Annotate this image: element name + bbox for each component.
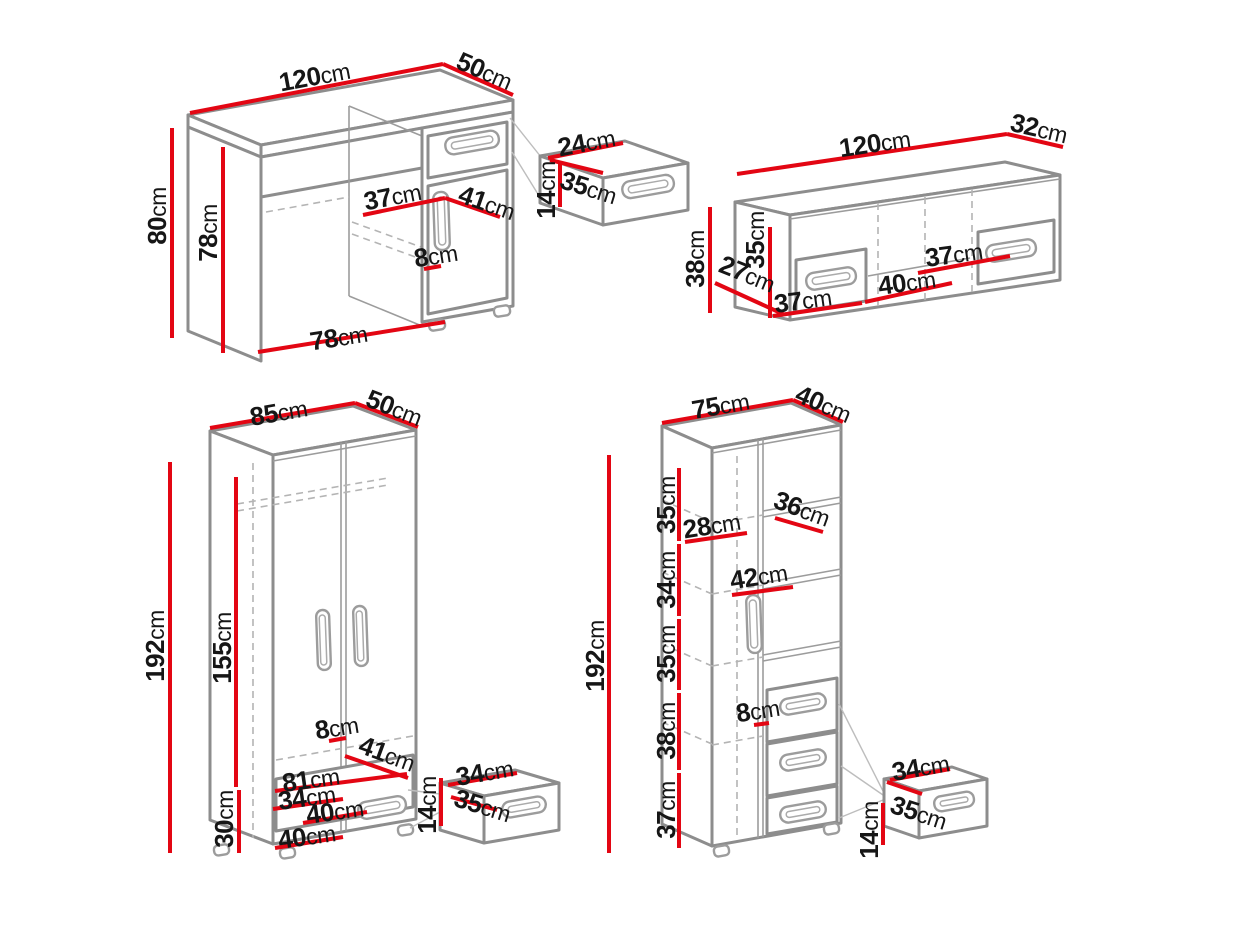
- furniture-dimensions-diagram: 120cm 50cm 80cm 78cm 37cm 41cm 8cm 78cm …: [0, 0, 1234, 925]
- furniture-dimension-sheet: 120cm 50cm 80cm 78cm 37cm 41cm 8cm 78cm …: [0, 0, 1234, 925]
- bookcase-diagram: 75cm 40cm 192cm 35cm 34cm 35cm 38cm 37cm…: [580, 379, 856, 857]
- bookcase-foot: [713, 845, 730, 857]
- dim-label-desk-height: 80cm: [142, 187, 172, 245]
- desk-foot: [493, 305, 510, 317]
- wardrobe-left-handle-icon: [316, 610, 331, 670]
- wall-cabinet-diagram: 120cm 32cm 38cm 35cm 27cm 37cm 40cm 37cm: [680, 107, 1070, 320]
- dim-label-drawer-height: 14cm: [854, 801, 884, 859]
- dim-label-section-3: 35cm: [651, 625, 681, 683]
- desk-diagram: 120cm 50cm 80cm 78cm 37cm 41cm 8cm 78cm: [142, 46, 519, 361]
- leader-line: [510, 118, 541, 157]
- dim-label-desk-opening: 78cm: [308, 318, 370, 357]
- dim-label-wall-height: 38cm: [680, 230, 710, 288]
- leader-line: [841, 766, 883, 795]
- dim-label-wardrobe-height: 192cm: [140, 610, 170, 682]
- dim-label-desk-inner-width: 37cm: [361, 176, 423, 216]
- dim-label-wall-width: 120cm: [837, 123, 912, 163]
- wardrobe-drawer-detail: 34cm 35cm 14cm: [408, 752, 559, 843]
- bookcase-door-handle-icon: [746, 595, 762, 653]
- desk-hidden-shelf-line: [352, 234, 421, 259]
- desk-drawer-detail: 24cm 35cm 14cm: [510, 118, 688, 225]
- dim-label-section-1: 35cm: [651, 476, 681, 534]
- wardrobe-diagram: 85cm 50cm 192cm 155cm 30cm 8cm 41cm 81cm…: [140, 383, 426, 859]
- dim-label-wardrobe-door-height: 155cm: [207, 612, 237, 684]
- dim-label-section-2: 34cm: [651, 551, 681, 609]
- dim-label-desk-side-height: 78cm: [193, 204, 223, 262]
- desk-kneehole-hidden-line: [266, 197, 349, 212]
- bookcase-drawer-detail: 34cm 35cm 14cm: [839, 704, 987, 859]
- dim-label-section-5: 37cm: [651, 781, 681, 839]
- dim-label-section-4: 38cm: [651, 702, 681, 760]
- dim-label-bookcase-height: 192cm: [580, 620, 610, 692]
- wardrobe-right-handle-icon: [353, 606, 368, 666]
- dim-label-drawer-height: 14cm: [412, 776, 442, 834]
- dim-label-drawer-height: 14cm: [531, 161, 561, 219]
- leader-line: [839, 704, 883, 791]
- dim-label-wardrobe-base-height: 30cm: [209, 790, 239, 848]
- bookcase-foot: [823, 823, 840, 835]
